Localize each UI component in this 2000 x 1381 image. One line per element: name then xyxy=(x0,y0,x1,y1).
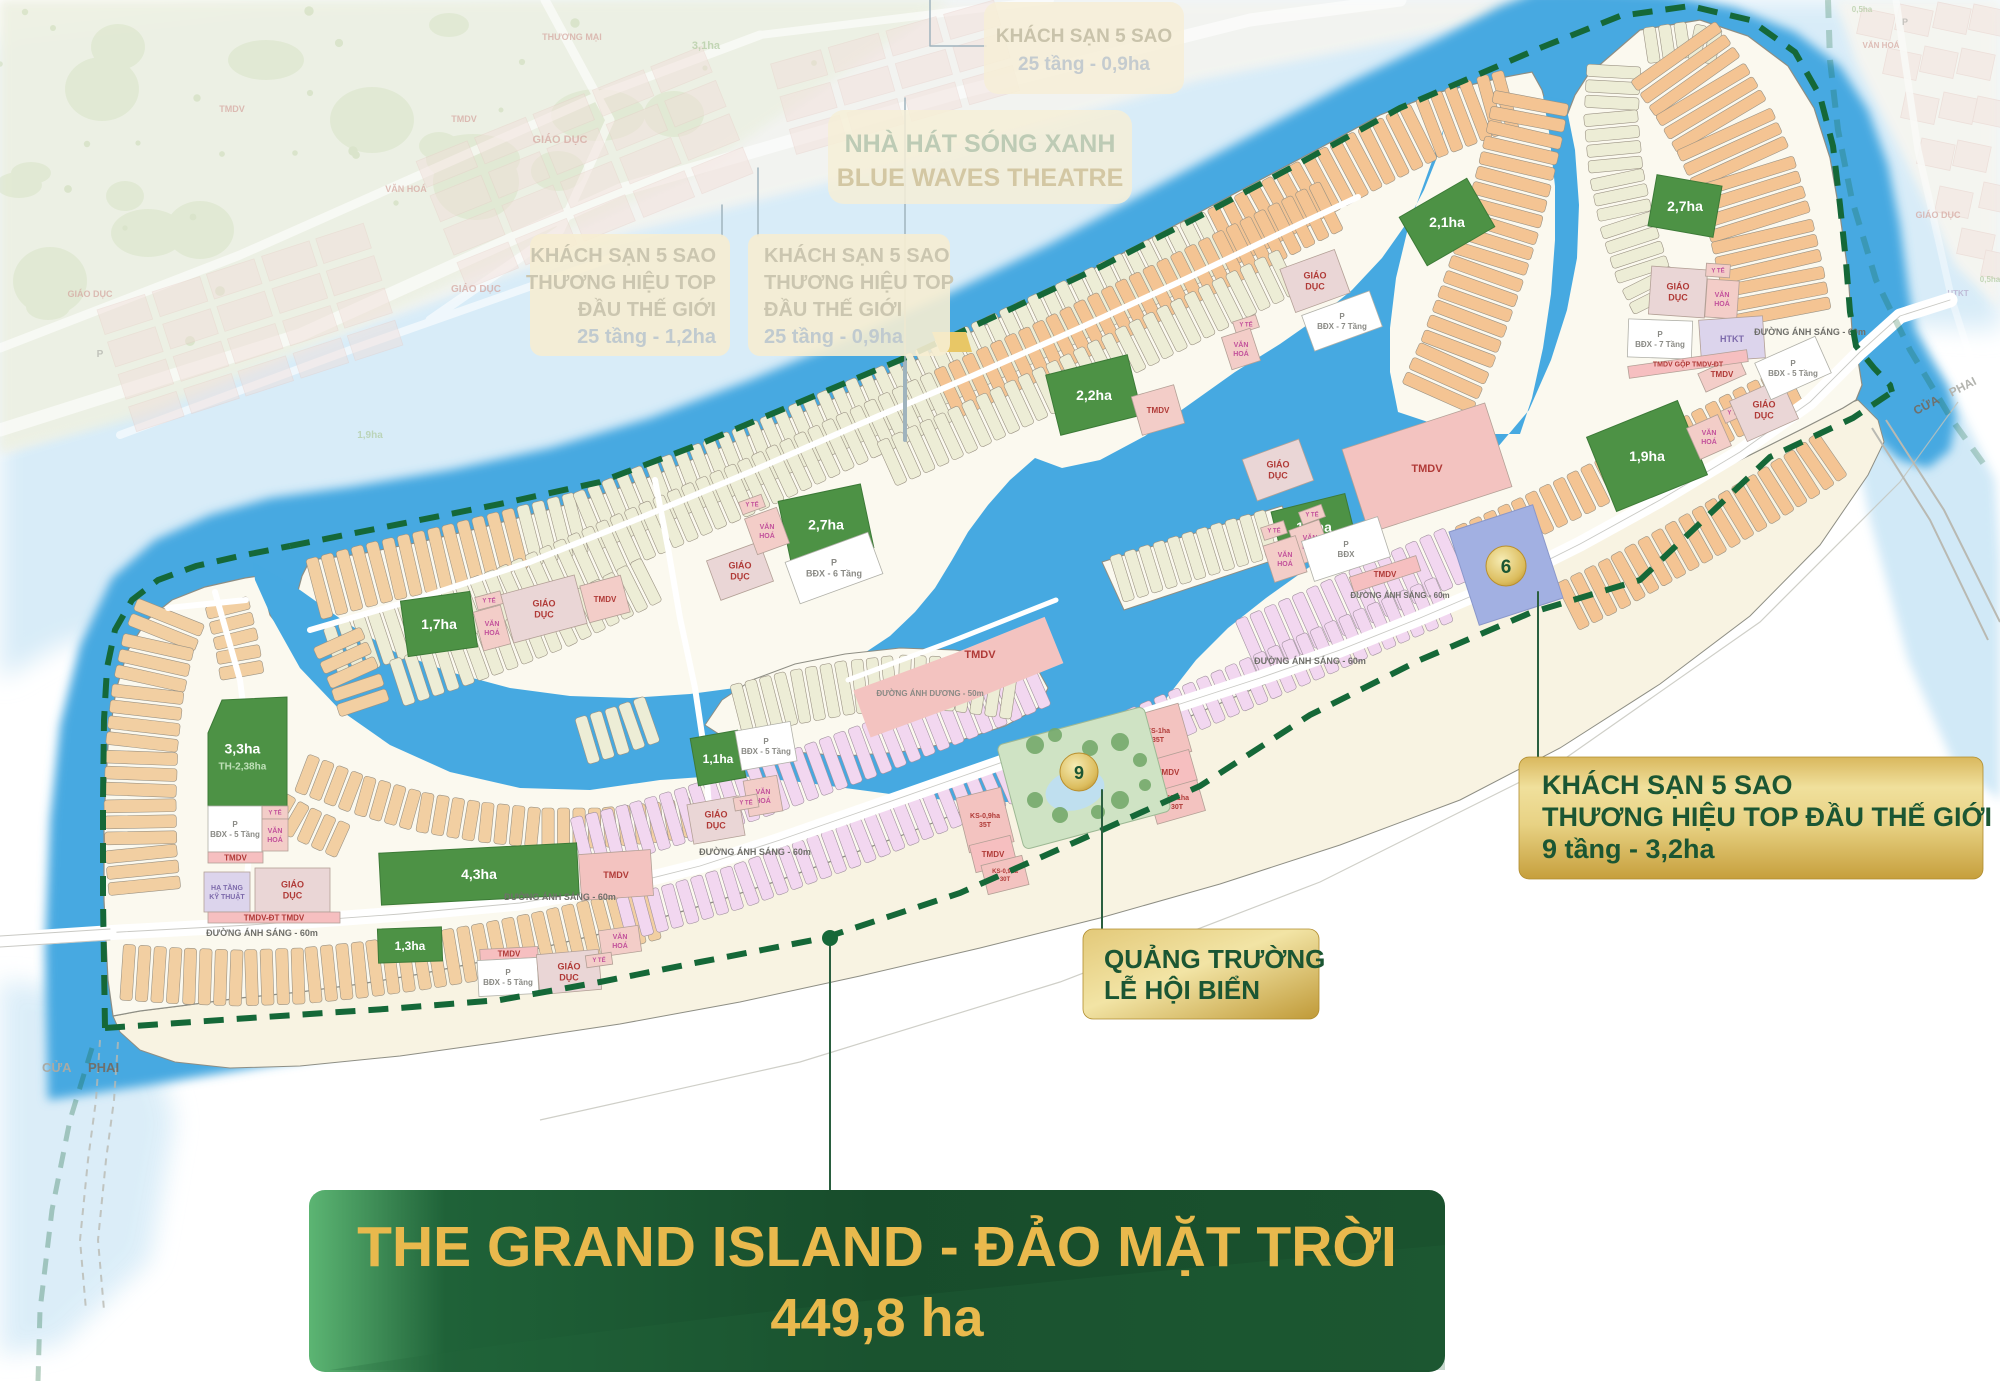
svg-text:9 tầng - 3,2ha: 9 tầng - 3,2ha xyxy=(1542,834,1716,864)
svg-text:30T: 30T xyxy=(1000,877,1011,883)
svg-text:TMDV: TMDV xyxy=(224,853,247,862)
svg-text:CỬA: CỬA xyxy=(42,1060,72,1075)
svg-text:Y TẾ: Y TẾ xyxy=(1711,268,1724,275)
svg-text:DỤC: DỤC xyxy=(1668,293,1688,303)
svg-text:THE GRAND ISLAND - ĐẢO MẶT TRỜ: THE GRAND ISLAND - ĐẢO MẶT TRỜI xyxy=(357,1214,1397,1279)
svg-text:GIÁO: GIÁO xyxy=(704,810,727,820)
svg-text:KHÁCH SẠN 5 SAO: KHÁCH SẠN 5 SAO xyxy=(764,244,950,267)
svg-text:2,2ha: 2,2ha xyxy=(1076,387,1112,403)
svg-text:GIÁO: GIÁO xyxy=(1666,282,1689,292)
svg-text:VĂN: VĂN xyxy=(613,932,628,941)
svg-text:TMDV: TMDV xyxy=(498,949,521,958)
svg-text:GIÁO: GIÁO xyxy=(1266,460,1289,470)
svg-text:PHAI: PHAI xyxy=(88,1060,119,1075)
svg-text:VĂN HOÁ: VĂN HOÁ xyxy=(385,184,427,194)
svg-text:P: P xyxy=(1902,17,1908,27)
svg-text:GIÁO DỤC: GIÁO DỤC xyxy=(68,289,114,299)
svg-text:KỸ THUẬT: KỸ THUẬT xyxy=(209,892,245,901)
svg-text:BLUE WAVES THEATRE: BLUE WAVES THEATRE xyxy=(837,164,1124,192)
svg-text:35T: 35T xyxy=(1152,737,1165,744)
svg-text:P: P xyxy=(505,968,511,977)
svg-text:BĐX - 5 Tầng: BĐX - 5 Tầng xyxy=(483,978,533,987)
svg-text:25 tầng - 1,2ha: 25 tầng - 1,2ha xyxy=(577,326,717,348)
svg-text:GIÁO: GIÁO xyxy=(557,962,580,972)
svg-text:HOÁ: HOÁ xyxy=(759,531,775,540)
svg-text:1,3ha: 1,3ha xyxy=(395,939,426,953)
svg-text:GIÁO: GIÁO xyxy=(1752,400,1775,410)
svg-text:DỤC: DỤC xyxy=(1754,411,1774,421)
svg-text:TMDV: TMDV xyxy=(594,595,617,604)
svg-text:BĐX - 7 Tầng: BĐX - 7 Tầng xyxy=(1317,322,1367,331)
svg-text:ĐƯỜNG ÁNH SÁNG - 60m: ĐƯỜNG ÁNH SÁNG - 60m xyxy=(1350,591,1449,600)
svg-text:VĂN: VĂN xyxy=(268,826,283,835)
svg-text:KS-0,9ha: KS-0,9ha xyxy=(970,813,1000,820)
svg-text:ĐƯỜNG ÁNH DƯƠNG - 50m: ĐƯỜNG ÁNH DƯƠNG - 50m xyxy=(876,689,983,698)
svg-text:BĐX - 6 Tầng: BĐX - 6 Tầng xyxy=(806,569,862,579)
svg-text:P: P xyxy=(97,349,104,360)
svg-text:ĐƯỜNG ÁNH SÁNG - 60m: ĐƯỜNG ÁNH SÁNG - 60m xyxy=(206,927,318,938)
svg-text:TMDV: TMDV xyxy=(603,870,629,880)
svg-text:35T: 35T xyxy=(979,822,992,829)
svg-text:HOÁ: HOÁ xyxy=(1277,559,1293,568)
svg-text:P: P xyxy=(1343,540,1349,549)
svg-text:KHÁCH SẠN 5 SAO: KHÁCH SẠN 5 SAO xyxy=(1542,769,1793,800)
svg-text:BĐX: BĐX xyxy=(1338,550,1356,559)
svg-text:3,3ha: 3,3ha xyxy=(224,740,260,756)
svg-text:LỄ HỘI BIỂN: LỄ HỘI BIỂN xyxy=(1104,975,1260,1005)
svg-text:VĂN: VĂN xyxy=(1278,550,1293,559)
svg-text:GIÁO: GIÁO xyxy=(728,561,751,571)
svg-text:2,7ha: 2,7ha xyxy=(808,517,844,533)
svg-text:P: P xyxy=(1339,312,1345,321)
svg-text:BĐX - 5 Tầng: BĐX - 5 Tầng xyxy=(741,747,791,756)
svg-text:ĐƯỜNG ÁNH SÁNG - 60m: ĐƯỜNG ÁNH SÁNG - 60m xyxy=(1254,655,1366,666)
svg-text:GIÁO DỤC: GIÁO DỤC xyxy=(533,133,588,146)
svg-text:ĐƯỜNG ÁNH SÁNG - 60m: ĐƯỜNG ÁNH SÁNG - 60m xyxy=(699,846,811,857)
svg-text:DỤC: DỤC xyxy=(730,572,750,582)
svg-text:25 tầng - 0,9ha: 25 tầng - 0,9ha xyxy=(1018,54,1150,75)
svg-text:GIÁO: GIÁO xyxy=(281,880,304,890)
svg-text:VĂN: VĂN xyxy=(1715,290,1730,299)
svg-text:30T: 30T xyxy=(1171,804,1184,811)
svg-text:VĂN: VĂN xyxy=(1702,428,1717,437)
svg-text:TMDV: TMDV xyxy=(982,850,1005,859)
svg-text:VĂN: VĂN xyxy=(485,619,500,628)
svg-text:VĂN: VĂN xyxy=(760,522,775,531)
svg-text:449,8 ha: 449,8 ha xyxy=(770,1288,984,1348)
svg-text:NHÀ HÁT SÓNG XANH: NHÀ HÁT SÓNG XANH xyxy=(845,128,1116,158)
svg-text:THƯƠNG HIỆU TOP ĐẦU THẾ GIỚI: THƯƠNG HIỆU TOP ĐẦU THẾ GIỚI xyxy=(1542,801,1992,832)
svg-text:HOÁ: HOÁ xyxy=(612,941,628,950)
svg-text:ĐẦU THẾ GIỚI: ĐẦU THẾ GIỚI xyxy=(764,297,902,321)
svg-text:TMDV-ĐT TMDV: TMDV-ĐT TMDV xyxy=(244,913,305,922)
svg-text:ĐƯỜNG ÁNH SÁNG - 60m: ĐƯỜNG ÁNH SÁNG - 60m xyxy=(504,891,616,902)
svg-text:VĂN: VĂN xyxy=(1234,340,1249,349)
svg-text:BĐX - 7 Tầng: BĐX - 7 Tầng xyxy=(1635,340,1685,349)
svg-text:TMDV: TMDV xyxy=(964,649,996,661)
svg-text:DỤC: DỤC xyxy=(1268,471,1288,481)
svg-text:TMDV: TMDV xyxy=(1711,370,1734,379)
svg-text:THƯƠNG HIỆU TOP: THƯƠNG HIỆU TOP xyxy=(764,270,954,294)
svg-text:TMDV: TMDV xyxy=(451,114,477,124)
svg-text:Y TẾ: Y TẾ xyxy=(268,810,281,817)
svg-text:6: 6 xyxy=(1501,557,1512,578)
svg-text:DỤC: DỤC xyxy=(534,610,554,620)
svg-text:Y TẾ: Y TẾ xyxy=(1305,512,1318,519)
svg-text:9: 9 xyxy=(1074,763,1084,783)
svg-text:0,5ha: 0,5ha xyxy=(1980,275,2000,284)
svg-text:BĐX - 5 Tầng: BĐX - 5 Tầng xyxy=(210,830,260,839)
svg-text:HOÁ: HOÁ xyxy=(267,835,283,844)
svg-text:25 tầng - 0,9ha: 25 tầng - 0,9ha xyxy=(764,326,904,348)
svg-text:GIÁO: GIÁO xyxy=(532,599,555,609)
svg-text:HTKT: HTKT xyxy=(1720,334,1744,344)
svg-text:P: P xyxy=(763,737,769,746)
svg-text:HOÁ: HOÁ xyxy=(484,628,500,637)
svg-text:0,5ha: 0,5ha xyxy=(1852,5,1873,14)
svg-text:3,1ha: 3,1ha xyxy=(692,40,721,52)
svg-text:GIÁO DỤC: GIÁO DỤC xyxy=(451,282,501,295)
svg-text:1,9ha: 1,9ha xyxy=(1629,448,1665,464)
svg-text:BĐX - 5 Tầng: BĐX - 5 Tầng xyxy=(1768,369,1818,378)
svg-text:P: P xyxy=(232,820,238,829)
svg-text:THƯƠNG HIỆU TOP: THƯƠNG HIỆU TOP xyxy=(526,270,716,294)
svg-text:2,7ha: 2,7ha xyxy=(1667,198,1703,214)
svg-text:TMDV: TMDV xyxy=(1374,570,1397,579)
svg-text:1,1ha: 1,1ha xyxy=(703,752,734,766)
svg-text:VĂN: VĂN xyxy=(756,787,771,796)
svg-text:KHÁCH SẠN 5 SAO: KHÁCH SẠN 5 SAO xyxy=(996,25,1172,47)
svg-text:DỤC: DỤC xyxy=(283,891,303,901)
svg-text:Y TẾ: Y TẾ xyxy=(1239,322,1252,329)
svg-text:VĂN HOÁ: VĂN HOÁ xyxy=(1863,41,1900,50)
svg-text:ĐẦU THẾ GIỚI: ĐẦU THẾ GIỚI xyxy=(578,297,716,321)
svg-text:QUẢNG TRƯỜNG: QUẢNG TRƯỜNG xyxy=(1104,944,1325,974)
svg-text:2,1ha: 2,1ha xyxy=(1429,214,1465,230)
svg-text:Y TẾ: Y TẾ xyxy=(482,598,495,605)
svg-text:Y TẾ: Y TẾ xyxy=(592,957,605,964)
svg-text:THƯƠNG MẠI: THƯƠNG MẠI xyxy=(542,32,602,42)
svg-text:TH-2,38ha: TH-2,38ha xyxy=(219,761,267,772)
svg-text:1,7ha: 1,7ha xyxy=(421,616,457,632)
svg-text:HOÁ: HOÁ xyxy=(1233,349,1249,358)
svg-text:1,9ha: 1,9ha xyxy=(357,430,383,441)
svg-text:DỤC: DỤC xyxy=(706,821,726,831)
svg-text:DỤC: DỤC xyxy=(559,973,579,983)
svg-text:P: P xyxy=(831,558,837,568)
svg-text:P: P xyxy=(1790,359,1796,368)
svg-text:DỤC: DỤC xyxy=(1305,282,1325,292)
svg-text:GIÁO DỤC: GIÁO DỤC xyxy=(1916,210,1962,220)
svg-text:TMDV: TMDV xyxy=(1147,406,1170,415)
svg-text:TMDV: TMDV xyxy=(219,104,245,114)
svg-text:Y TẾ: Y TẾ xyxy=(739,800,752,807)
svg-text:HOÁ: HOÁ xyxy=(1701,437,1717,446)
svg-text:GIÁO: GIÁO xyxy=(1303,271,1326,281)
svg-text:Y TẾ: Y TẾ xyxy=(1267,528,1280,535)
svg-text:ĐƯỜNG ÁNH SÁNG - 60m: ĐƯỜNG ÁNH SÁNG - 60m xyxy=(1754,326,1866,337)
svg-text:Y TẾ: Y TẾ xyxy=(745,502,758,509)
svg-text:HOÁ: HOÁ xyxy=(1714,299,1730,308)
svg-text:P: P xyxy=(1657,330,1663,339)
svg-text:4,3ha: 4,3ha xyxy=(461,866,497,882)
svg-text:TMDV: TMDV xyxy=(1411,463,1443,475)
svg-text:TMDV GỘP TMDV-ĐT: TMDV GỘP TMDV-ĐT xyxy=(1653,359,1724,368)
svg-text:KHÁCH SẠN 5 SAO: KHÁCH SẠN 5 SAO xyxy=(530,244,716,267)
